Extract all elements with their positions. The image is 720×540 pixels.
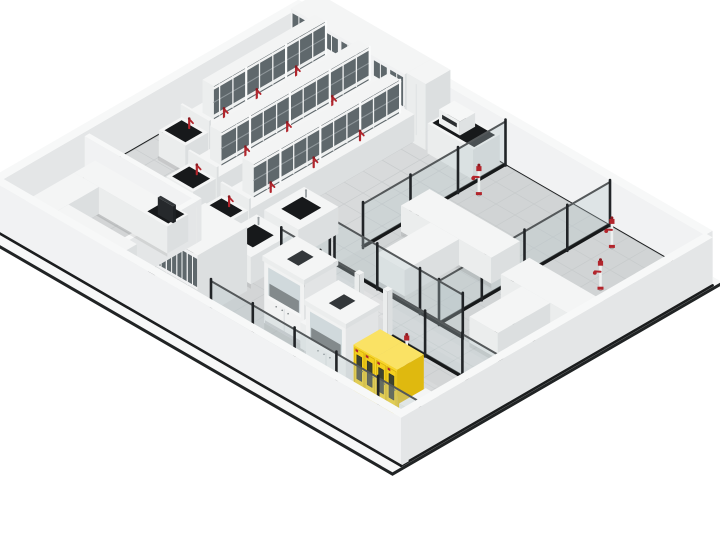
lab-floorplan-render bbox=[0, 0, 720, 540]
isometric-lab-scene bbox=[0, 0, 720, 540]
